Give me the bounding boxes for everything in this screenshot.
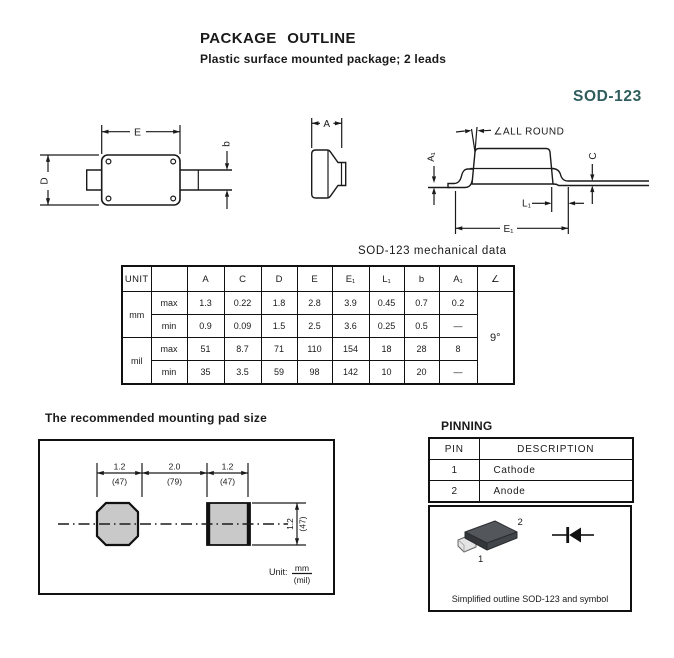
end-view-drawing: A (280, 110, 400, 220)
outline-caption: Simplified outline SOD-123 and symbol (452, 594, 609, 604)
pinning-heading: PINNING (441, 419, 492, 433)
mech-value-cell: 1.5 (261, 315, 297, 338)
mech-value-cell: 59 (261, 361, 297, 385)
angle-note-label: ∠ALL ROUND (494, 127, 565, 138)
mech-header-a: A (187, 266, 224, 292)
mech-header-unit: UNIT (122, 266, 151, 292)
dim-label-e: E (134, 127, 141, 139)
mech-value-cell: 110 (297, 338, 332, 361)
mech-header-d: D (261, 266, 297, 292)
mech-value-cell: 20 (404, 361, 439, 385)
mech-value-cell: 0.7 (404, 292, 439, 315)
mech-value-cell: 35 (187, 361, 224, 385)
page-title: PACKAGE OUTLINE (200, 30, 356, 47)
mech-value-cell: 18 (369, 338, 404, 361)
pinning-table: PIN DESCRIPTION 1 Cathode 2 Anode (428, 437, 634, 503)
mech-unit-mil: mil (122, 338, 151, 385)
mech-value-cell: 2.5 (297, 315, 332, 338)
pin-number: 2 (429, 481, 479, 503)
mech-row-label: min (151, 315, 187, 338)
mounting-pad-drawing: 1.2 (47) 2.0 (79) 1.2 (47) 1.2 (47) Unit… (40, 441, 333, 593)
pad-dim-left-mm: 1.2 (114, 462, 126, 472)
dim-label-b: b (222, 141, 233, 147)
pinning-header-description: DESCRIPTION (479, 438, 633, 460)
pad-dim-right-mil: (47) (220, 477, 235, 487)
mech-value-cell: — (439, 361, 477, 385)
mech-value-cell: 0.09 (224, 315, 261, 338)
mech-value-cell: 0.5 (404, 315, 439, 338)
mech-header-blank (151, 266, 187, 292)
mech-value-cell: 8.7 (224, 338, 261, 361)
mech-row-label: max (151, 292, 187, 315)
mech-value-cell: 2.8 (297, 292, 332, 315)
mech-value-cell: 0.25 (369, 315, 404, 338)
mech-value-cell: 1.8 (261, 292, 297, 315)
dim-label-l1: L₁ (522, 199, 532, 210)
pad-dim-right-mm: 1.2 (222, 462, 234, 472)
mech-value-cell: 142 (332, 361, 369, 385)
pad-dim-center-mm: 2.0 (169, 462, 181, 472)
pad-side-dim-mil: (47) (298, 516, 308, 531)
mech-value-cell: 3.5 (224, 361, 261, 385)
pad-dim-center-mil: (79) (167, 477, 182, 487)
mech-row-label: min (151, 361, 187, 385)
pad-unit-label: Unit: (269, 567, 288, 577)
pad-dim-left-mil: (47) (112, 477, 127, 487)
mech-value-cell: 0.22 (224, 292, 261, 315)
mech-value-cell: — (439, 315, 477, 338)
mech-row-label: max (151, 338, 187, 361)
dim-label-c: C (588, 152, 599, 159)
diode-symbol (552, 527, 594, 543)
mech-header-c: C (224, 266, 261, 292)
mounting-pad-heading: The recommended mounting pad size (45, 411, 267, 425)
mech-value-cell: 1.3 (187, 292, 224, 315)
mech-header-l1: L₁ (369, 266, 404, 292)
dim-label-e1: E₁ (503, 224, 514, 235)
mech-value-cell: 28 (404, 338, 439, 361)
mounting-pad-box: 1.2 (47) 2.0 (79) 1.2 (47) 1.2 (47) Unit… (38, 439, 335, 595)
mech-value-cell: 10 (369, 361, 404, 385)
side-view-drawing: ∠ALL ROUND A₁ L₁ E₁ C (420, 108, 655, 248)
pad-unit-numerator: mm (295, 563, 309, 573)
mech-header-e1: E₁ (332, 266, 369, 292)
mech-header-b: b (404, 266, 439, 292)
mech-header-e: E (297, 266, 332, 292)
package-name: SOD-123 (573, 88, 642, 106)
pinning-row: 1 Cathode (429, 460, 633, 481)
outline-box: 2 1 Simplified outline SOD-123 and symbo… (428, 505, 632, 612)
mech-value-cell: 0.9 (187, 315, 224, 338)
mech-table-caption: SOD-123 mechanical data (358, 245, 507, 257)
page-subtitle: Plastic surface mounted package; 2 leads (200, 52, 446, 66)
mech-value-cell: 154 (332, 338, 369, 361)
mech-header-a1: A₁ (439, 266, 477, 292)
pinning-header-pin: PIN (429, 438, 479, 460)
mech-angle-value: 9° (477, 292, 514, 385)
mech-table: UNIT A C D E E₁ L₁ b A₁ ∠ mm max 1.3 0.2… (121, 265, 515, 385)
mech-value-cell: 8 (439, 338, 477, 361)
mech-value-cell: 71 (261, 338, 297, 361)
pin-description: Anode (479, 481, 633, 503)
mech-value-cell: 3.9 (332, 292, 369, 315)
mech-unit-mm: mm (122, 292, 151, 338)
dim-label-a: A (323, 119, 330, 130)
pin2-label: 2 (518, 517, 523, 528)
mech-value-cell: 3.6 (332, 315, 369, 338)
pin-number: 1 (429, 460, 479, 481)
pad-side-dim-mm: 1.2 (285, 518, 295, 530)
pinning-row: 2 Anode (429, 481, 633, 503)
dim-label-d: D (40, 177, 51, 184)
outline-drawing: 2 1 Simplified outline SOD-123 and symbo… (430, 507, 630, 610)
top-view-drawing: E D b (35, 110, 240, 245)
dim-label-a1: A₁ (426, 152, 437, 162)
pin-description: Cathode (479, 460, 633, 481)
mech-value-cell: 51 (187, 338, 224, 361)
pin1-label: 1 (478, 554, 483, 565)
datasheet-page: PACKAGE OUTLINE Plastic surface mounted … (0, 0, 674, 658)
mech-value-cell: 98 (297, 361, 332, 385)
mech-header-angle: ∠ (477, 266, 514, 292)
mech-value-cell: 0.2 (439, 292, 477, 315)
mech-value-cell: 0.45 (369, 292, 404, 315)
pad-unit-denominator: (mil) (294, 575, 311, 585)
